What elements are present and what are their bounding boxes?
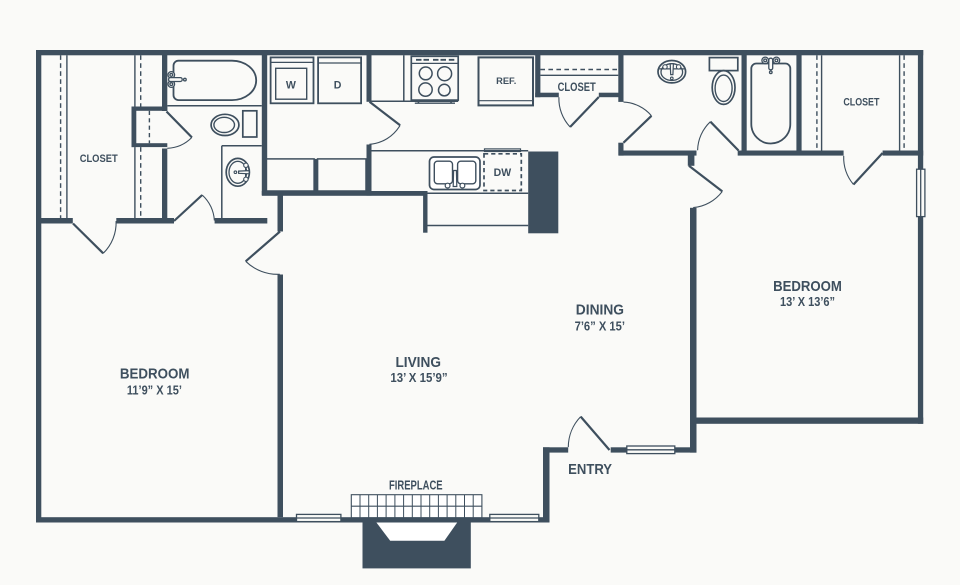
svg-text:BEDROOM: BEDROOM <box>773 279 842 295</box>
svg-text:CLOSET: CLOSET <box>80 153 118 165</box>
svg-text:D: D <box>334 79 342 91</box>
svg-text:ENTRY: ENTRY <box>568 461 612 478</box>
svg-text:REF.: REF. <box>496 76 516 87</box>
svg-text:BEDROOM: BEDROOM <box>120 367 190 383</box>
svg-text:13’ X 15’9”: 13’ X 15’9” <box>390 370 447 385</box>
svg-text:W: W <box>286 79 296 91</box>
svg-text:CLOSET: CLOSET <box>843 96 879 108</box>
svg-text:FIREPLACE: FIREPLACE <box>389 478 443 493</box>
svg-text:CLOSET: CLOSET <box>558 80 597 94</box>
svg-text:13’ X 13’6”: 13’ X 13’6” <box>780 294 835 309</box>
svg-text:LIVING: LIVING <box>395 355 441 371</box>
svg-text:DW: DW <box>494 167 512 179</box>
svg-text:11’9” X 15’: 11’9” X 15’ <box>127 382 182 397</box>
svg-text:DINING: DINING <box>576 301 624 318</box>
svg-text:7’6” X 15’: 7’6” X 15’ <box>575 318 625 333</box>
